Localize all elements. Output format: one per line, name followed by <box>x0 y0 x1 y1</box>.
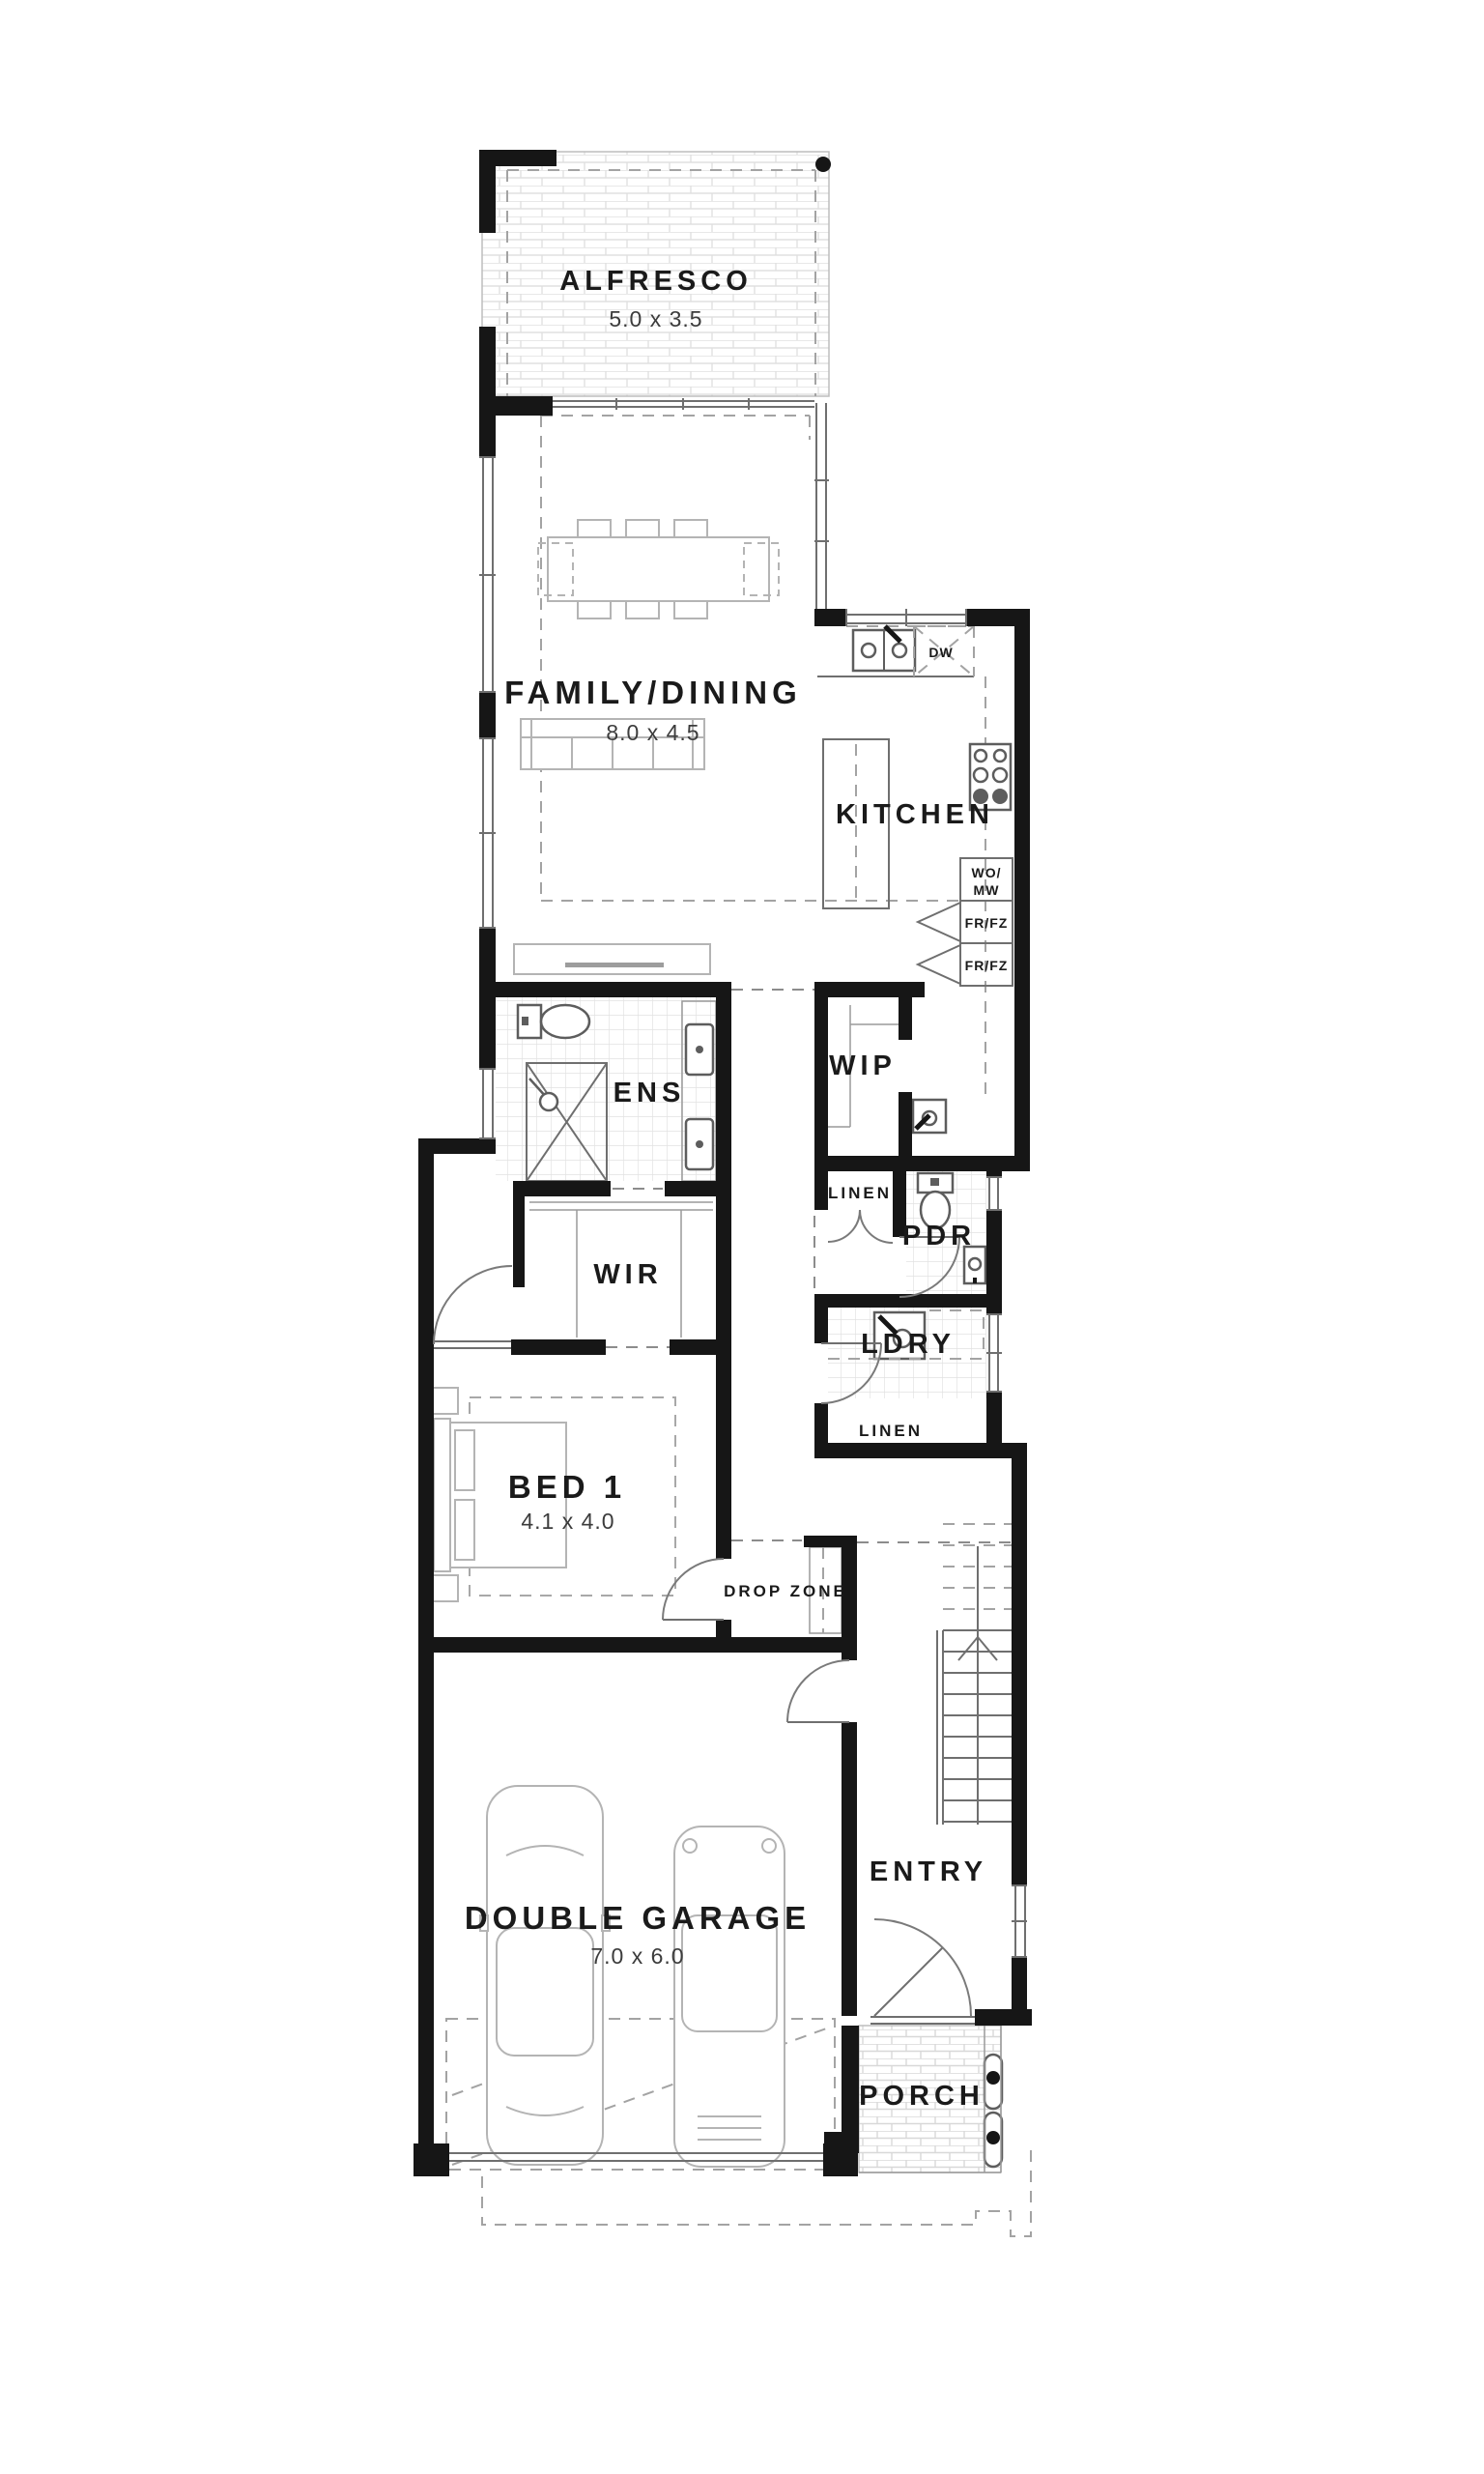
linen-laundry-label: LINEN <box>859 1422 923 1440</box>
basin-icon <box>964 1247 985 1283</box>
tv-unit <box>514 944 710 974</box>
porch-label: PORCH <box>859 2081 985 2112</box>
garage-label: DOUBLE GARAGE <box>465 1900 811 1936</box>
kitchen-label: KITCHEN <box>836 799 994 830</box>
entry-label: ENTRY <box>870 1856 987 1887</box>
bedside-table-icon <box>432 1388 458 1414</box>
wip-label: WIP <box>829 1050 897 1081</box>
headlight-icon <box>683 1839 697 1853</box>
family-dining-dims: 8.0 x 4.5 <box>606 720 699 745</box>
headlight-icon <box>762 1839 776 1853</box>
floorplan-page: ALFRESCO 5.0 x 3.5 FAMILY/DINING 8.0 x 4… <box>0 0 1484 2474</box>
dishwasher-label: DW <box>928 645 953 660</box>
toilet-icon <box>518 1005 589 1038</box>
wip-sink-icon <box>913 1100 946 1133</box>
car-right <box>674 1827 785 2167</box>
wall-oven-label-1: WO/ <box>972 865 1002 880</box>
powder-label: PDR <box>902 1221 976 1251</box>
bedside-table-icon <box>432 1575 458 1601</box>
linen-hall-label: LINEN <box>828 1184 892 1202</box>
fridge-freezer-label-1: FR/FZ <box>965 915 1009 931</box>
pillar-icon <box>986 2071 1000 2085</box>
shower-rose-icon <box>540 1093 557 1110</box>
bed1-dims: 4.1 x 4.0 <box>521 1509 614 1534</box>
family-dining-label: FAMILY/DINING <box>504 675 802 710</box>
dropzone-label: DROP ZONE <box>724 1582 847 1600</box>
alfresco-dims: 5.0 x 3.5 <box>609 306 702 331</box>
fridge-freezer-label-2: FR/FZ <box>965 958 1009 973</box>
tv-icon <box>565 963 664 967</box>
alfresco-post <box>815 157 831 172</box>
wall-oven-label-2: MW <box>974 882 1000 898</box>
laundry-label: LDRY <box>861 1329 956 1360</box>
alfresco-label: ALFRESCO <box>559 266 753 297</box>
bed1-label: BED 1 <box>508 1469 626 1505</box>
car-left <box>480 1786 610 2165</box>
pillar-icon <box>986 2131 1000 2144</box>
floorplan-drawing: ALFRESCO 5.0 x 3.5 FAMILY/DINING 8.0 x 4… <box>0 0 1484 2474</box>
wir-label: WIR <box>593 1259 662 1290</box>
garage-dims: 7.0 x 6.0 <box>590 1943 684 1969</box>
ensuite-label: ENS <box>614 1078 686 1108</box>
